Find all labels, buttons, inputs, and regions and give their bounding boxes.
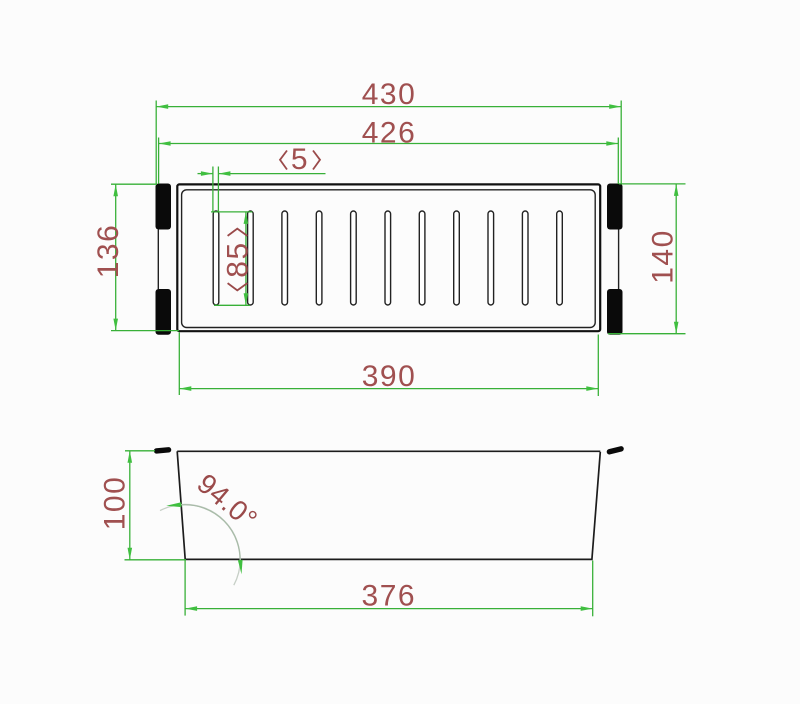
svg-text:136: 136 [92, 224, 125, 279]
svg-text:430: 430 [362, 78, 417, 111]
svg-text:85: 85 [222, 241, 255, 277]
svg-text:140: 140 [647, 229, 680, 284]
svg-text:426: 426 [362, 117, 417, 150]
svg-text:390: 390 [362, 360, 417, 393]
svg-text:376: 376 [362, 580, 417, 613]
svg-text:100: 100 [99, 476, 132, 531]
svg-text:5: 5 [291, 143, 309, 176]
